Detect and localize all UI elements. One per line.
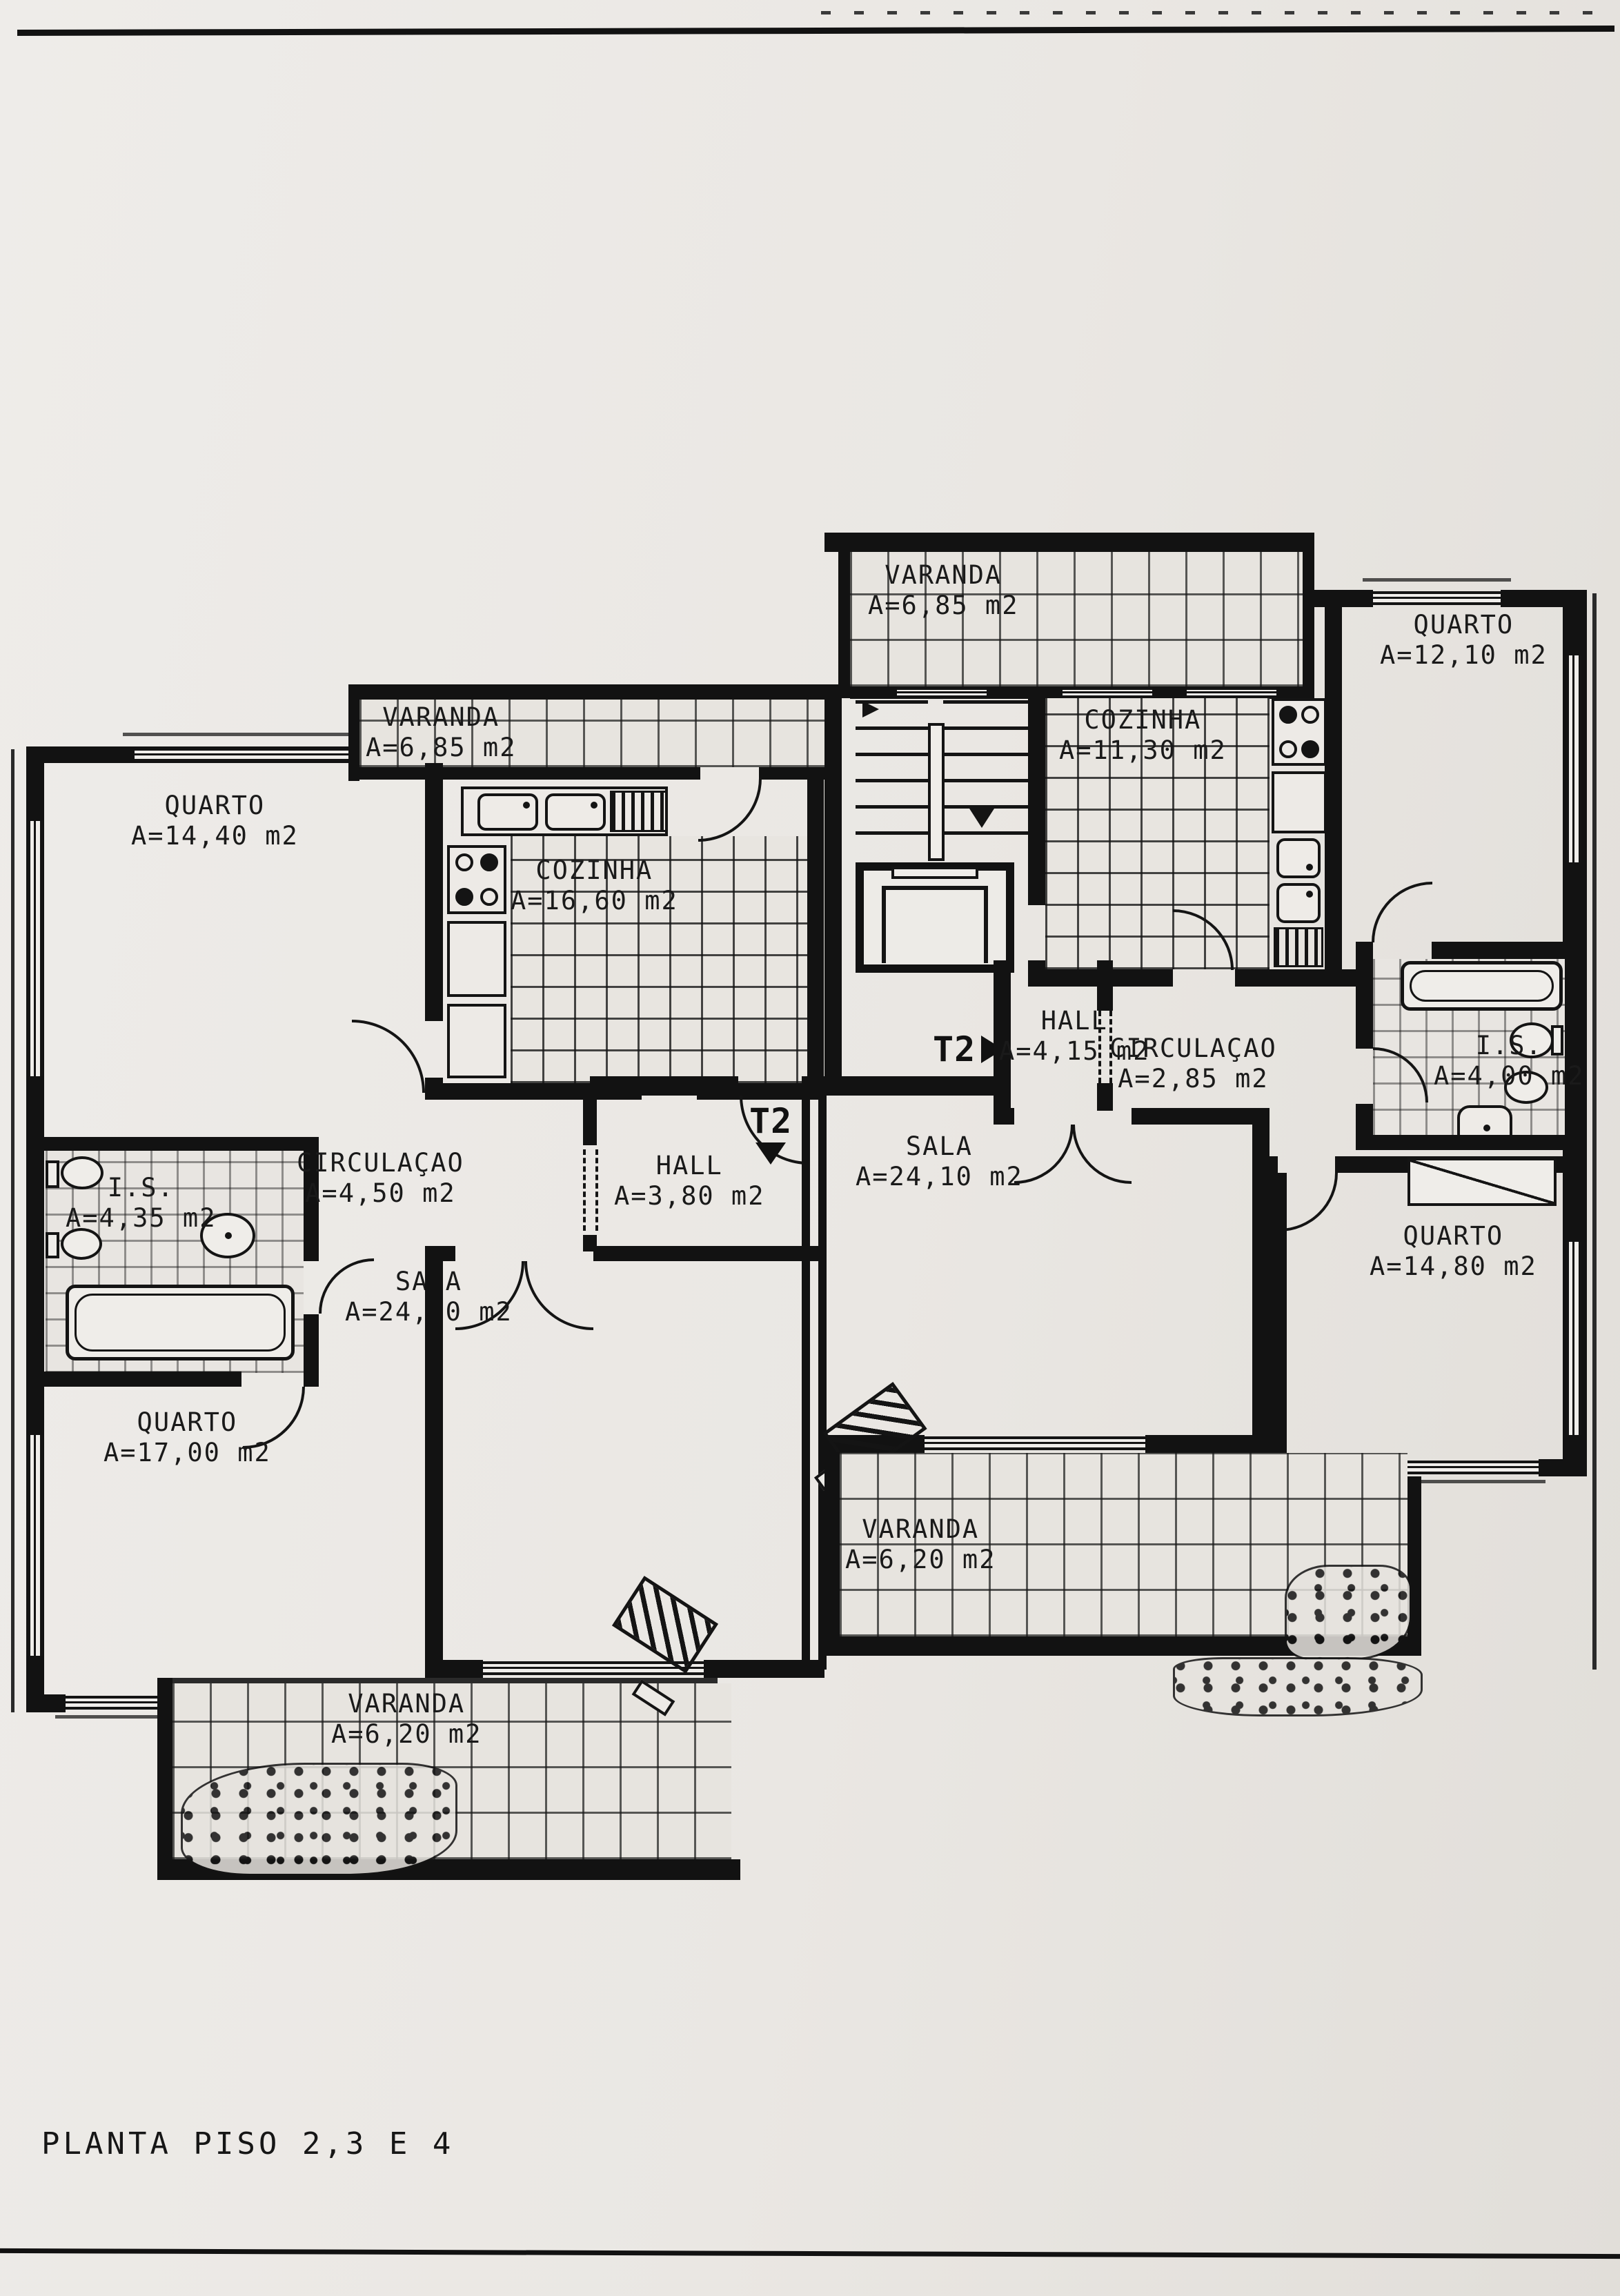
scan-top-edge-line (17, 26, 1614, 36)
wall-hall-circ-divider-a (1097, 960, 1113, 1011)
sink-left-kitchen-2 (545, 793, 606, 831)
stove-block-left (447, 845, 506, 914)
rocks-ornament-mid-right (1285, 1565, 1412, 1660)
cabinet-left-kitchen-2 (447, 1004, 506, 1078)
room-name: I.S. (1434, 1031, 1584, 1061)
french-door-sala-left-2 (524, 1261, 593, 1330)
wall-core-east-a (1028, 698, 1045, 905)
arrow-down-icon (755, 1142, 786, 1165)
wall-quarto1210-bottom-b (1432, 942, 1587, 959)
french-door-sala-right-1 (1014, 1125, 1074, 1184)
room-area: A=6,20 m2 (845, 1545, 996, 1575)
wardrobe-quarto1480 (1407, 1158, 1557, 1206)
unit-label: T2 (749, 1101, 792, 1141)
room-name: QUARTO (131, 791, 299, 821)
room-name: VARANDA (366, 702, 516, 733)
unit-marker-right: T2 (933, 1029, 1003, 1069)
french-door-sala-right-2 (1072, 1125, 1132, 1184)
burner-icon (1279, 740, 1297, 758)
room-label-sala-right: SALA A=24,10 m2 (856, 1131, 1023, 1193)
wall-varanda-mid-left (824, 1452, 840, 1656)
unit-marker-left: T2 (749, 1101, 792, 1165)
door-arc-quarto1210 (1372, 882, 1432, 942)
door-arc-varanda-kitchen-left (698, 778, 762, 842)
room-label-circulacao-right: CIRCULAÇAO A=2,85 m2 (1109, 1033, 1277, 1095)
room-area: A=4,35 m2 (66, 1203, 216, 1234)
wall-stub-hall-left-a (583, 1100, 597, 1145)
room-label-is-left: I.S. A=4,35 m2 (66, 1173, 216, 1234)
room-label-quarto-top-left: QUARTO A=14,40 m2 (131, 791, 299, 852)
room-name: VARANDA (868, 560, 1018, 591)
wall-quarto1480-bottom-b (1539, 1459, 1587, 1476)
wall-is-left-top (26, 1137, 319, 1151)
window-quarto1210-top (1373, 591, 1501, 605)
wall-cozinha-right-bottom-b (1235, 969, 1356, 987)
room-label-cozinha-right: COZINHA A=11,30 m2 (1059, 705, 1227, 766)
wall-quarto17-sala-divider (425, 1246, 443, 1712)
footer-rule-line (0, 2248, 1620, 2259)
room-label-varanda-top: VARANDA A=6,85 m2 (868, 560, 1018, 622)
window-quarto17-left (28, 1435, 43, 1656)
room-label-varanda-left: VARANDA A=6,85 m2 (366, 702, 516, 764)
outer-skin-left (11, 749, 14, 1712)
party-wall-a (802, 1076, 810, 1670)
room-name: QUARTO (1370, 1221, 1537, 1251)
room-area: A=11,30 m2 (1059, 735, 1227, 766)
drainer-left-kitchen (610, 791, 668, 832)
room-area: A=14,40 m2 (131, 821, 299, 851)
door-arc-quarto1480 (1279, 1173, 1338, 1231)
room-name: I.S. (66, 1173, 216, 1203)
wall-quarto1480-west (1270, 1173, 1287, 1476)
wall-sala-right-east (1252, 1108, 1270, 1435)
wall-varanda-top-bold (824, 533, 1314, 552)
wall-varanda-bl-left (157, 1678, 172, 1880)
bathtub-icon-right (1401, 961, 1563, 1011)
wall-sala-left-top-b (593, 1246, 824, 1261)
room-area: A=14,80 m2 (1370, 1251, 1537, 1282)
room-label-is-right: I.S. A=4,00 m2 (1434, 1031, 1584, 1092)
wall-quarto1210-top-a (1314, 590, 1373, 607)
wall-hall-right-south-a (994, 1108, 1014, 1125)
stair-divider (928, 723, 945, 861)
burner-icon (1301, 740, 1319, 758)
room-name: CIRCULAÇAO (297, 1148, 464, 1178)
window-varanda-top-3 (1187, 687, 1276, 698)
room-name: QUARTO (1380, 610, 1548, 640)
room-area: A=4,00 m2 (1434, 1061, 1584, 1091)
room-area: A=24,10 m2 (856, 1162, 1023, 1192)
wall-varanda-left-side (348, 684, 359, 781)
hatched-pillar-bl (612, 1576, 718, 1674)
wall-sala-right-bottom-b (1145, 1435, 1270, 1453)
window-quarto1210-right (1566, 655, 1581, 862)
room-name: COZINHA (1059, 705, 1227, 735)
room-area: A=16,60 m2 (511, 886, 678, 916)
room-name: CIRCULAÇAO (1109, 1033, 1277, 1064)
stair-flight-right (943, 700, 1028, 855)
room-area: A=4,50 m2 (297, 1178, 464, 1209)
toilet-tank-left (46, 1160, 59, 1188)
scanned-floorplan-page: VARANDA A=6,85 m2 QUARTO A=14,40 m2 COZI… (0, 0, 1620, 2296)
cabinet-left-kitchen-1 (447, 921, 506, 997)
wall-varanda-top-right (1303, 533, 1314, 698)
wall-quarto1440-right-b (425, 1078, 443, 1100)
room-label-varanda-bottom-mid: VARANDA A=6,20 m2 (845, 1514, 996, 1576)
room-label-quarto-bottom-right: QUARTO A=14,80 m2 (1370, 1221, 1537, 1283)
window-sala-right-bottom (925, 1436, 1145, 1450)
room-label-varanda-bottom-left: VARANDA A=6,20 m2 (331, 1689, 482, 1750)
stair-flight-left (856, 700, 928, 855)
window-varanda-top-2 (1063, 687, 1152, 698)
wall-varanda-left-bottom-a (348, 767, 700, 780)
room-name: QUARTO (103, 1407, 271, 1438)
burner-icon (1279, 706, 1297, 724)
sliding-door-circulacao-hall-left (583, 1149, 598, 1231)
room-area: A=17,00 m2 (103, 1438, 271, 1468)
wall-hall-right-south-b (1132, 1108, 1256, 1125)
elevator-car (882, 886, 988, 963)
burner-icon (480, 888, 498, 906)
burner-icon (1301, 706, 1319, 724)
sink-left-kitchen-1 (477, 793, 538, 831)
room-label-quarto-top-right: QUARTO A=12,10 m2 (1380, 610, 1548, 671)
wall-core-west (824, 684, 842, 1096)
room-name: VARANDA (331, 1689, 482, 1719)
room-area: A=6,85 m2 (868, 591, 1018, 621)
room-area: A=6,85 m2 (366, 733, 516, 763)
rocks-ornament-bl (181, 1763, 457, 1876)
room-name: SALA (856, 1131, 1023, 1162)
room-area: A=3,80 m2 (614, 1181, 764, 1211)
wall-varanda-top-left (838, 533, 850, 698)
wall-quarto1480-top-a (1270, 1156, 1278, 1173)
stove-block-right (1272, 698, 1327, 766)
elevator-counterweight (891, 867, 978, 879)
room-name: HALL (614, 1151, 764, 1181)
window-quarto1440-left (28, 821, 43, 1076)
wall-varanda-bl-top (172, 1678, 718, 1683)
counter-right-kitchen (1272, 771, 1327, 833)
scan-top-dashes (821, 11, 1614, 14)
room-area: A=12,10 m2 (1380, 640, 1548, 671)
room-area: A=2,85 m2 (1109, 1064, 1277, 1094)
wall-landing-hall-left-a (590, 1076, 738, 1096)
window-varanda-top-1 (897, 687, 987, 698)
burner-icon (455, 853, 473, 871)
wall-sala-left-top-a (443, 1246, 455, 1261)
wall-varanda-left-top (348, 684, 831, 700)
wall-cozinha-left-right (807, 778, 824, 1083)
wall-cozinha-right-east (1325, 607, 1342, 969)
sink-right-kitchen-2 (1276, 883, 1321, 923)
drainer-right-kitchen (1274, 927, 1323, 967)
drawing-title: PLANTA PISO 2,3 E 4 (41, 2126, 454, 2161)
bathtub-icon-left (66, 1285, 295, 1360)
wall-quarto1210-bottom-a (1356, 942, 1373, 959)
room-label-hall-left: HALL A=3,80 m2 (614, 1151, 764, 1212)
rocks-ornament-bed-right (1173, 1657, 1423, 1716)
room-name: HALL (999, 1006, 1149, 1036)
burner-icon (480, 853, 498, 871)
wall-landing-sala-right (824, 1076, 994, 1096)
wall-is-quarto17-divider-b (304, 1372, 319, 1387)
stair-arrow-entry-icon (862, 701, 879, 717)
wall-is-quarto17-divider-a (26, 1372, 241, 1387)
room-name: COZINHA (511, 855, 678, 886)
door-arc-quarto1440 (352, 1020, 425, 1093)
wall-quarto1440-right-a (425, 763, 443, 1021)
sill-quarto1210-top (1363, 578, 1511, 582)
wall-is-right-bottom (1356, 1135, 1587, 1150)
wall-is-right-west-a (1356, 959, 1373, 1049)
burner-icon (455, 888, 473, 906)
sink-right-kitchen-1 (1276, 838, 1321, 878)
room-name: VARANDA (845, 1514, 996, 1545)
room-label-quarto-bottom-left: QUARTO A=17,00 m2 (103, 1407, 271, 1469)
wall-sala-left-bottom-a (443, 1660, 483, 1678)
window-quarto1480-right (1566, 1242, 1581, 1435)
stair-arrow-down-icon (969, 809, 994, 828)
bidet-tank-left (46, 1232, 59, 1258)
room-label-cozinha-left: COZINHA A=16,60 m2 (511, 855, 678, 917)
unit-label: T2 (933, 1029, 976, 1069)
outer-skin-right (1592, 593, 1597, 1670)
wall-varanda-mid-right (1407, 1476, 1421, 1656)
wall-quarto17-bottom-a (26, 1694, 66, 1712)
room-label-circulacao-left: CIRCULAÇAO A=4,50 m2 (297, 1148, 464, 1209)
room-area: A=6,20 m2 (331, 1719, 482, 1750)
